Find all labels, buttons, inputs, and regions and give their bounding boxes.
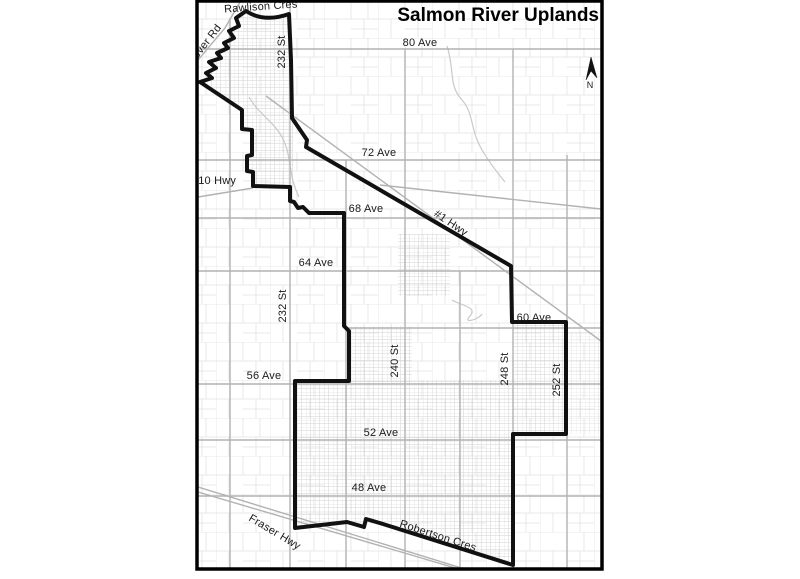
label-52-ave: 52 Ave — [364, 427, 399, 439]
label-252-st: 252 St — [551, 363, 563, 396]
label-232-st-south: 232 St — [277, 289, 289, 322]
label-64-ave: 64 Ave — [299, 257, 334, 269]
north-arrow-label: N — [587, 80, 594, 90]
map-title: Salmon River Uplands — [397, 5, 599, 26]
parcel-strips-east — [569, 332, 601, 434]
label-232-st-north: 232 St — [276, 35, 288, 68]
map-canvas: Rawlison Cres Glover Rd 232 St 80 Ave 72… — [0, 0, 800, 579]
label-60-ave: 60 Ave — [517, 312, 552, 324]
label-240-st: 240 St — [389, 344, 401, 377]
label-56-ave: 56 Ave — [247, 370, 282, 382]
label-68-ave: 68 Ave — [349, 203, 384, 215]
label-72-ave: 72 Ave — [362, 147, 397, 159]
label-80-ave: 80 Ave — [403, 37, 438, 49]
label-248-st: 248 St — [499, 352, 511, 385]
label-48-ave: 48 Ave — [352, 482, 387, 494]
map-page: Rawlison Cres Glover Rd 232 St 80 Ave 72… — [0, 0, 800, 579]
